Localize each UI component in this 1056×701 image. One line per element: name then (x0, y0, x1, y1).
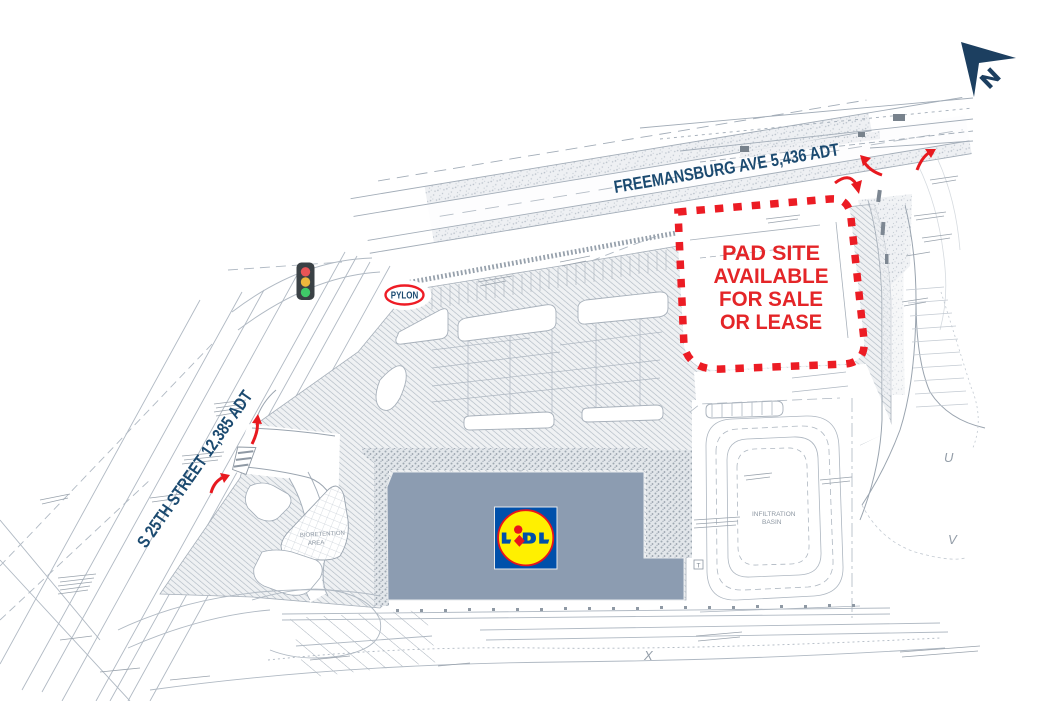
svg-text:AREA: AREA (308, 540, 325, 547)
svg-text:INFILTRATION: INFILTRATION (752, 511, 796, 518)
svg-text:X: X (643, 648, 654, 663)
svg-text:PYLON: PYLON (391, 291, 419, 302)
svg-text:FOR SALE: FOR SALE (719, 287, 823, 311)
svg-text:V: V (948, 532, 958, 547)
svg-text:OR LEASE: OR LEASE (720, 310, 822, 334)
svg-text:AVAILABLE: AVAILABLE (714, 264, 829, 288)
svg-text:U: U (944, 450, 954, 465)
svg-text:BASIN: BASIN (762, 519, 782, 526)
svg-text:T: T (697, 563, 701, 570)
svg-text:PAD SITE: PAD SITE (722, 241, 820, 265)
